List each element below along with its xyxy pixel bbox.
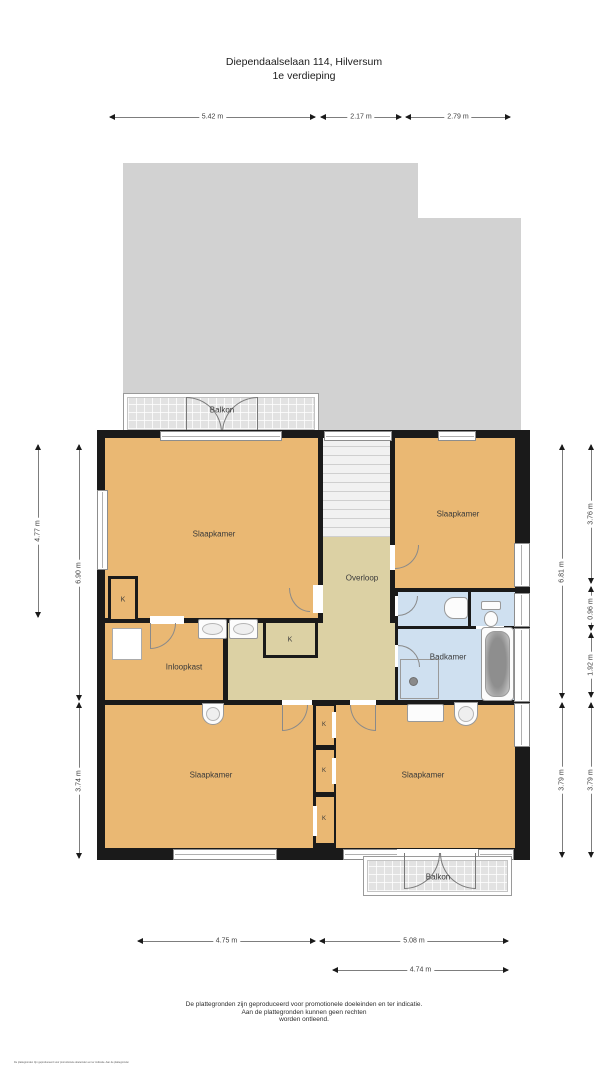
dim-right-outer-2: 0.96 m [591,587,592,630]
room-label-slaapkamer-bl: Slaapkamer [190,771,233,780]
footer-line-2: Aan de plattegronden kunnen geen rechten [0,1009,608,1017]
window-bottom-1 [173,849,277,860]
closet-label-tl: K [121,597,126,604]
floorplan-page: { "title": { "address": "Diependaalselaa… [0,0,608,1080]
dim-right-outer-1-label: 3.76 m [588,500,595,527]
dim-bottom-3: 4.74 m [333,970,508,971]
room-label-badkamer: Badkamer [430,653,466,662]
double-sink-left-fixture [198,619,227,639]
bathtub-basin [485,631,510,697]
dim-bottom-1: 4.75 m [138,941,315,942]
dim-bottom-1-label: 4.75 m [213,938,240,945]
closet-label-overloop: K [288,637,293,644]
sink-bottomleft-fixture [202,703,224,725]
dim-left-3-label: 3.74 m [76,767,83,794]
room-label-inloopkast: Inloopkast [166,663,202,672]
dim-top-3-label: 2.79 m [444,114,471,121]
dim-bottom-2: 5.08 m [320,941,508,942]
dim-right-outer-1: 3.76 m [591,445,592,583]
door-opening-closet-2 [332,758,336,784]
balcony-top-label: Balkon [210,406,234,415]
shower-fixture [400,659,439,699]
window-right-4 [514,703,530,747]
dim-right-inner-1-label: 6.81 m [559,558,566,585]
dim-left-1: 4.77 m [38,445,39,617]
staircase [323,438,390,537]
window-right-3 [514,628,530,702]
window-top-1 [160,431,282,441]
dim-left-2: 6.90 m [79,445,80,700]
dim-left-3: 3.74 m [79,703,80,858]
floor-subtitle: 1e verdieping [0,70,608,82]
bathtub-fixture [481,627,514,701]
door-opening-closet-1 [332,712,336,738]
room-label-overloop: Overloop [346,574,378,583]
double-sink-right-fixture [229,619,258,639]
dim-top-2-label: 2.17 m [347,114,374,121]
window-left-1 [97,490,108,570]
window-right-1 [514,543,530,587]
dim-top-3: 2.79 m [406,117,510,118]
dim-right-outer-4-label: 3.79 m [588,766,595,793]
page-title: Diependaalselaan 114, Hilversum [0,56,608,68]
door-opening-closet-3 [313,806,317,836]
footer-line-3: worden ontleend. [0,1016,608,1024]
dim-right-outer-3: 1.92 m [591,633,592,697]
dim-right-outer-2-label: 0.96 m [588,595,595,622]
roof-area [123,163,521,430]
room-label-slaapkamer-tr: Slaapkamer [437,510,480,519]
dim-bottom-3-label: 4.74 m [407,967,434,974]
dim-right-inner-2-label: 3.79 m [559,766,566,793]
footer-disclaimer: De plattegronden zijn geproduceerd voor … [0,1001,608,1024]
shower-drain [409,677,418,686]
window-top-2 [324,431,392,441]
dim-right-outer-3-label: 1.92 m [588,651,595,678]
microprint-text: De plattegronden zijn geproduceerd voor … [14,1061,129,1064]
dim-right-inner-2: 3.79 m [562,703,563,857]
floorplan: Slaapkamer Slaapkamer Overloop Badkamer … [97,430,530,860]
dim-right-inner-1: 6.81 m [562,445,563,698]
dim-left-1-label: 4.77 m [35,517,42,544]
dim-left-2-label: 6.90 m [76,559,83,586]
closet-label-3: K [322,816,326,822]
dim-right-outer-4: 3.79 m [591,703,592,857]
window-right-2 [514,593,530,627]
toilet-tank-fixture [481,601,501,610]
closet-label-1: K [322,722,326,728]
dim-top-1-label: 5.42 m [199,114,226,121]
sink-bottomright-fixture [454,702,478,726]
door-opening-slaapkamer-tl [313,585,323,613]
balcony-bottom-label: Balkon [426,873,450,882]
dim-bottom-2-label: 5.08 m [400,938,427,945]
room-label-slaapkamer-tl: Slaapkamer [193,530,236,539]
closet-label-2: K [322,768,326,774]
counter-bottomright-fixture [407,704,444,722]
window-top-3 [438,431,476,441]
washbasin-wc-fixture [444,597,468,619]
dim-top-2: 2.17 m [321,117,401,118]
dim-top-1: 5.42 m [110,117,315,118]
room-label-slaapkamer-br: Slaapkamer [402,771,445,780]
void-niche [112,628,142,660]
toilet-bowl-fixture [484,611,498,627]
footer-line-1: De plattegronden zijn geproduceerd voor … [0,1001,608,1009]
